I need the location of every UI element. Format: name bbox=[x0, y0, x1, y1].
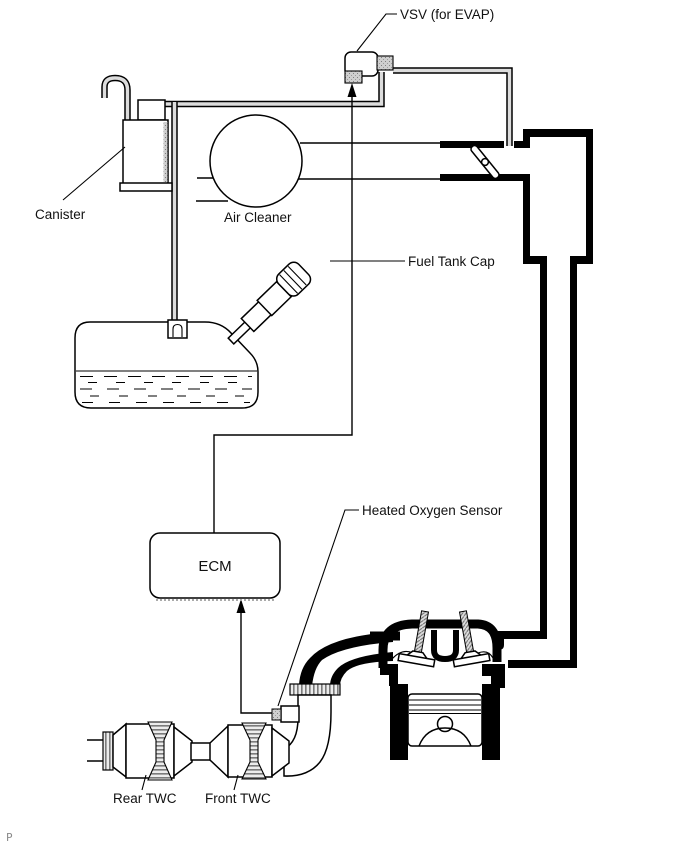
piston bbox=[408, 694, 482, 746]
label-front-twc: Front TWC bbox=[205, 791, 271, 806]
front-twc bbox=[210, 723, 289, 779]
label-vsv: VSV (for EVAP) bbox=[400, 7, 494, 22]
exhaust-flange bbox=[290, 684, 340, 695]
o2-sensor-wire bbox=[237, 599, 273, 713]
wrist-pin bbox=[438, 717, 453, 732]
diagram-canvas: ECM bbox=[0, 0, 691, 845]
vsv-connector-block bbox=[377, 56, 393, 70]
fuel-filler-neck bbox=[221, 259, 314, 350]
spark-plug-well bbox=[434, 630, 456, 659]
purge-pipe-vsv-to-throttle bbox=[393, 71, 510, 147]
vsv-valve bbox=[345, 52, 393, 83]
cylinder-wall-right bbox=[482, 684, 500, 760]
arrow-into-ecm bbox=[237, 599, 246, 613]
arrow-into-vsv bbox=[348, 83, 357, 97]
air-cleaner bbox=[210, 115, 302, 207]
leader-o2-sensor bbox=[278, 510, 359, 706]
cylinder-wall-left bbox=[390, 684, 408, 760]
label-heated-oxygen-sensor: Heated Oxygen Sensor bbox=[362, 503, 503, 518]
ecm-box: ECM bbox=[150, 533, 280, 600]
intake-duct-walls bbox=[440, 129, 593, 666]
twc-connector-pipe bbox=[191, 743, 211, 760]
label-rear-twc: Rear TWC bbox=[113, 791, 177, 806]
label-fuel-tank-cap: Fuel Tank Cap bbox=[408, 254, 495, 269]
oxygen-sensor bbox=[272, 706, 299, 722]
leader-canister bbox=[63, 147, 125, 200]
page-watermark: P bbox=[6, 831, 13, 844]
leader-vsv bbox=[357, 14, 397, 51]
vsv-port-block bbox=[345, 71, 362, 83]
tank-vent-fitting bbox=[168, 320, 187, 338]
intake-duct-lines bbox=[298, 143, 440, 179]
label-air-cleaner: Air Cleaner bbox=[224, 210, 292, 225]
label-canister: Canister bbox=[35, 207, 86, 222]
exhaust-manifold bbox=[299, 632, 393, 686]
engine-cylinder bbox=[370, 608, 577, 760]
rear-twc bbox=[87, 722, 192, 780]
canister-air-inlet-pipe bbox=[105, 78, 128, 122]
evap-system-diagram: ECM bbox=[0, 0, 691, 845]
ecm-label: ECM bbox=[198, 558, 231, 575]
